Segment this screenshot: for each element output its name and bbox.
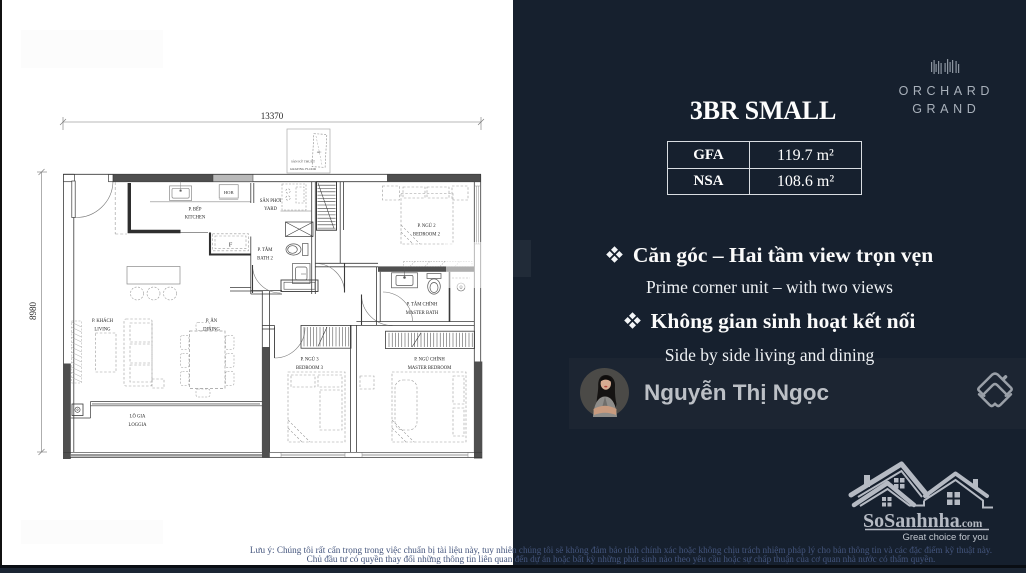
svg-text:BEDROOM 3: BEDROOM 3	[296, 366, 324, 371]
svg-text:GRATING FLOOR: GRATING FLOOR	[290, 167, 317, 171]
svg-text:DINING: DINING	[203, 327, 220, 332]
svg-text:8980: 8980	[28, 302, 38, 321]
svg-text:F: F	[229, 242, 233, 249]
svg-text:.com: .com	[959, 518, 983, 530]
svg-text:YARD: YARD	[264, 207, 277, 212]
svg-text:Great choice for you: Great choice for you	[902, 532, 988, 543]
svg-text:P. TẮM: P. TẮM	[258, 246, 274, 253]
svg-text:LIVING: LIVING	[94, 327, 111, 332]
svg-text:SÂN PHƠI: SÂN PHƠI	[260, 198, 282, 204]
svg-text:MASTER BEDROOM: MASTER BEDROOM	[408, 366, 452, 371]
svg-text:KITCHEN: KITCHEN	[185, 215, 206, 220]
svg-text:BEDROOM 2: BEDROOM 2	[413, 232, 441, 237]
svg-text:P. NGỦ 2: P. NGỦ 2	[417, 223, 436, 229]
svg-text:AC: AC	[317, 150, 322, 154]
svg-text:P. TẮM CHÍNH: P. TẮM CHÍNH	[407, 301, 438, 308]
svg-text:LOGGIA: LOGGIA	[129, 423, 148, 428]
svg-text:SoSanhnha: SoSanhnha	[863, 510, 960, 532]
svg-text:P. KHÁCH: P. KHÁCH	[92, 318, 114, 324]
svg-text:P. BẾP: P. BẾP	[188, 207, 201, 213]
svg-text:BATH 2: BATH 2	[257, 256, 273, 261]
svg-text:P. NGỦ CHÍNH: P. NGỦ CHÍNH	[414, 357, 445, 363]
svg-text:P. ĂN: P. ĂN	[206, 318, 218, 324]
svg-text:LÔ GIA: LÔ GIA	[130, 414, 146, 420]
svg-text:P. NGỦ 3: P. NGỦ 3	[300, 357, 319, 363]
svg-text:HOB: HOB	[224, 190, 234, 195]
svg-text:13370: 13370	[261, 111, 284, 121]
svg-text:SÀN KỸ THUẬT: SÀN KỸ THUẬT	[291, 159, 315, 164]
